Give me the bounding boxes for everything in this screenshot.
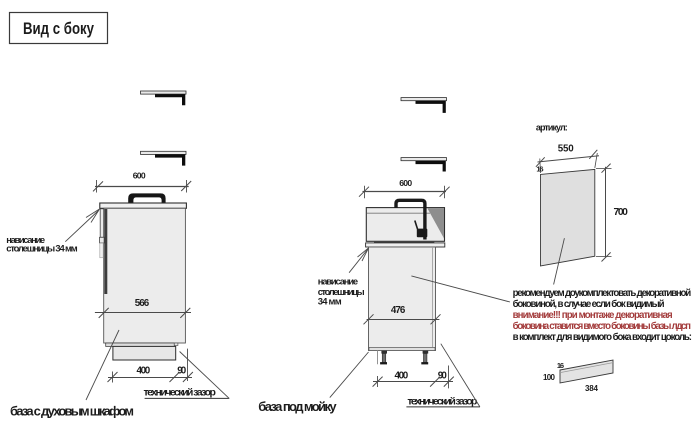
svg-text:550: 550 [558, 144, 574, 155]
svg-text:16: 16 [557, 361, 564, 370]
svg-text:боковиной, в случае если бок в: боковиной, в случае если бок видимый [513, 299, 665, 310]
svg-text:90: 90 [177, 365, 187, 376]
svg-text:566: 566 [135, 298, 150, 309]
svg-text:боковина ставится вместо боков: боковина ставится вместо боковины базы л… [513, 321, 692, 332]
svg-text:90: 90 [438, 371, 448, 382]
svg-text:600: 600 [399, 178, 412, 188]
svg-text:700: 700 [614, 207, 629, 218]
svg-text:476: 476 [391, 305, 406, 316]
svg-text:столешницы 34 мм: столешницы 34 мм [6, 242, 77, 253]
svg-text:600: 600 [133, 170, 146, 180]
svg-text:в комплект для видимого бока в: в комплект для видимого бока входит цоко… [513, 332, 692, 343]
svg-text:400: 400 [394, 371, 408, 382]
svg-text:Вид с боку: Вид с боку [23, 20, 95, 38]
svg-text:технический зазор: технический зазор [144, 387, 216, 399]
svg-text:16: 16 [536, 164, 543, 173]
svg-text:34 мм: 34 мм [318, 296, 342, 307]
svg-text:внимание!!! при монтаже декора: внимание!!! при монтаже декоративная [513, 310, 673, 321]
svg-text:100: 100 [543, 373, 556, 382]
svg-text:технический зазор: технический зазор [407, 396, 477, 408]
svg-text:400: 400 [136, 365, 150, 376]
svg-text:артикул:: артикул: [536, 123, 568, 133]
svg-text:база с духовым шкафом: база с духовым шкафом [10, 404, 134, 419]
svg-text:384: 384 [585, 384, 599, 393]
svg-text:база под мойку: база под мойку [258, 399, 337, 414]
svg-text:рекомендуем доукомплектовать д: рекомендуем доукомплектовать декоративно… [513, 288, 692, 299]
